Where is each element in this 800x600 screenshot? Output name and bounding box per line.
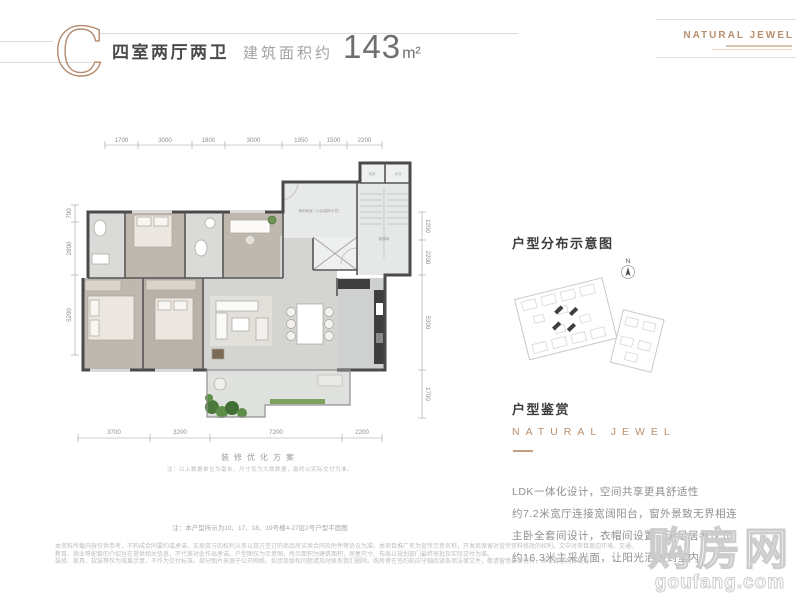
- shaft-right-label: 水井: [394, 171, 402, 176]
- legal-fineprint: 本资料所载内容仅供参考，不构成合同要约或承诺，买卖双方的权利义务以双方签订的商品…: [55, 544, 637, 567]
- brand-tagline-line: [726, 45, 792, 47]
- dim-top-4: 3000: [247, 137, 261, 144]
- dim-left-2: 2800: [66, 241, 73, 255]
- site-plan-building-large: [515, 278, 617, 360]
- site-plan: N: [505, 254, 675, 394]
- dim-bottom-2: 3200: [173, 429, 187, 436]
- dim-bottom-1: 3700: [107, 429, 121, 436]
- appreciation-title: 户型鉴赏: [512, 399, 570, 418]
- compass-label: N: [626, 258, 631, 265]
- entry-label: 梯间前室（公区装修示意）: [298, 208, 341, 213]
- brand-caption: NATURAL JEWEL: [512, 426, 676, 438]
- plan-caption-note: 注：以上数据单位为毫米，尺寸仅为大致数据，最终以实际交付为准。: [60, 465, 460, 473]
- area-number: 143: [343, 28, 401, 66]
- area-unit: m²: [402, 45, 421, 63]
- floor-plan: 梯间前室（公区装修示意） 楼梯间 电井 水井: [60, 128, 460, 473]
- distribution-title: 户型分布示意图: [512, 233, 614, 252]
- floorplan-page: C 四室两厅两卫 建筑面积约 143 m² NATURAL JEWEL: [0, 0, 800, 600]
- dim-bottom-3: 7200: [269, 429, 283, 436]
- header-rule-left-top: [0, 41, 53, 42]
- dim-right-3: 5300: [424, 316, 431, 330]
- shaft-left-label: 电井: [368, 171, 376, 176]
- dim-top-7: 2200: [358, 137, 372, 144]
- dim-left-3: 5200: [66, 308, 73, 322]
- brand-dash: [513, 450, 533, 452]
- brand-logo: NATURAL JEWEL: [656, 19, 796, 58]
- dim-top-5: 1950: [294, 137, 308, 144]
- dim-top-1: 1700: [115, 137, 129, 144]
- plan-note: 注：本户型所示为10、17、18、19号楼4-27层2号户型平面图: [60, 522, 460, 532]
- compass: N: [622, 258, 635, 279]
- unit-type-label: 四室两厅两卫: [112, 38, 229, 63]
- dim-top-6: 1500: [327, 137, 341, 144]
- dim-right-2: 2200: [424, 251, 431, 265]
- dim-top-2: 3000: [158, 137, 172, 144]
- watermark-site-url: goufang.com: [648, 572, 792, 594]
- stair-label: 楼梯间: [379, 236, 390, 241]
- dim-left-1: 700: [66, 208, 73, 219]
- floor-fills: [83, 163, 410, 417]
- dim-right-1: 1200: [424, 219, 431, 233]
- site-plan-building-small: [610, 310, 664, 373]
- area-label: 建筑面积约: [243, 42, 333, 63]
- brand-name: NATURAL JEWEL: [656, 30, 794, 41]
- fineprint-line: 装修、家具、软装等仅为效果示意，不作为交付标准。部分图片来源于公开网络，如涉及版…: [55, 559, 637, 567]
- dim-top-3: 1800: [202, 137, 216, 144]
- dim-right-4: 1700: [424, 387, 431, 401]
- page-title: 四室两厅两卫 建筑面积约 143 m²: [112, 28, 421, 66]
- brand-tagline-line2: [712, 49, 792, 50]
- description-line: 约7.2米宽厅连接宽阔阳台，窗外景致无界相连: [512, 503, 762, 525]
- plan-caption: 装修优化方案: [60, 452, 460, 463]
- fineprint-line: 本资料所载内容仅供参考，不构成合同要约或承诺，买卖双方的权利义务以双方签订的商品…: [55, 544, 637, 559]
- unit-letter: C: [54, 20, 105, 86]
- description-line: LDK一体化设计，空间共享更具舒适性: [512, 481, 762, 503]
- dim-bottom-4: 2200: [355, 429, 369, 436]
